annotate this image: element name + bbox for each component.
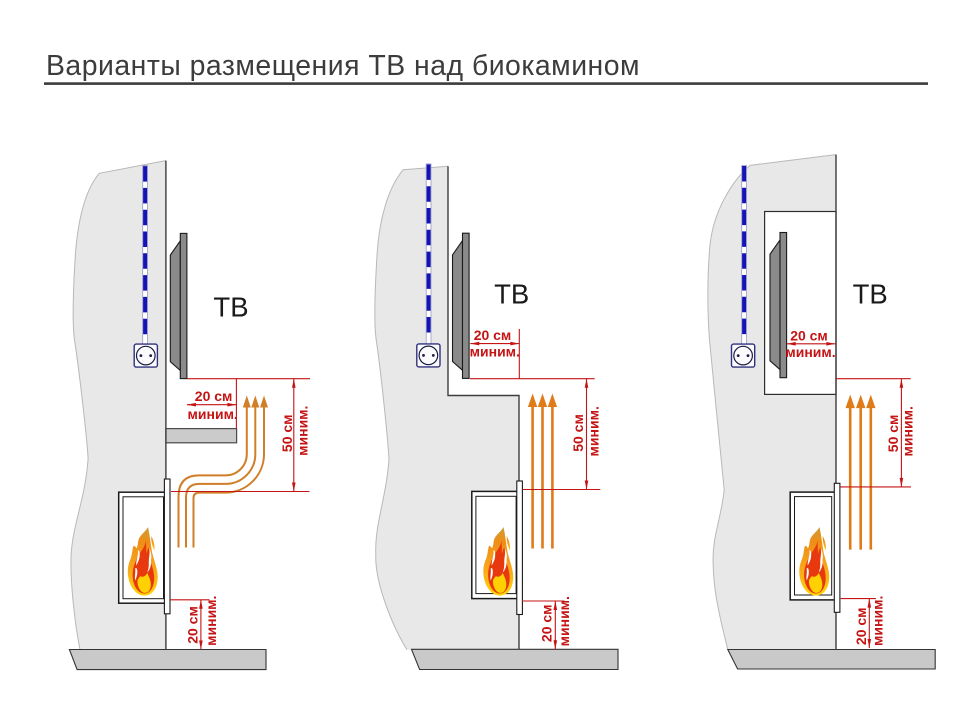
svg-text:50 см: 50 см — [279, 414, 295, 452]
svg-text:20 см: 20 см — [790, 328, 828, 344]
svg-text:миним.: миним. — [470, 344, 520, 360]
svg-text:ТВ: ТВ — [853, 279, 888, 310]
svg-text:ТВ: ТВ — [213, 292, 248, 323]
svg-text:20 см: 20 см — [539, 604, 555, 642]
svg-text:50 см: 50 см — [570, 414, 586, 452]
svg-text:20 см: 20 см — [474, 327, 512, 343]
svg-text:миним.: миним. — [295, 406, 311, 456]
svg-text:Варианты размещения ТВ над био: Варианты размещения ТВ над биокамином — [46, 50, 640, 82]
svg-text:миним.: миним. — [203, 596, 219, 646]
svg-text:миним.: миним. — [785, 344, 835, 360]
svg-text:миним.: миним. — [870, 596, 886, 646]
svg-text:20 см: 20 см — [195, 388, 233, 404]
svg-text:ТВ: ТВ — [494, 279, 529, 310]
svg-text:миним.: миним. — [900, 406, 916, 456]
svg-text:20 см: 20 см — [184, 606, 200, 644]
svg-text:миним.: миним. — [556, 596, 572, 646]
svg-text:20 см: 20 см — [853, 607, 869, 645]
svg-text:миним.: миним. — [188, 406, 238, 422]
svg-text:миним.: миним. — [585, 406, 601, 456]
